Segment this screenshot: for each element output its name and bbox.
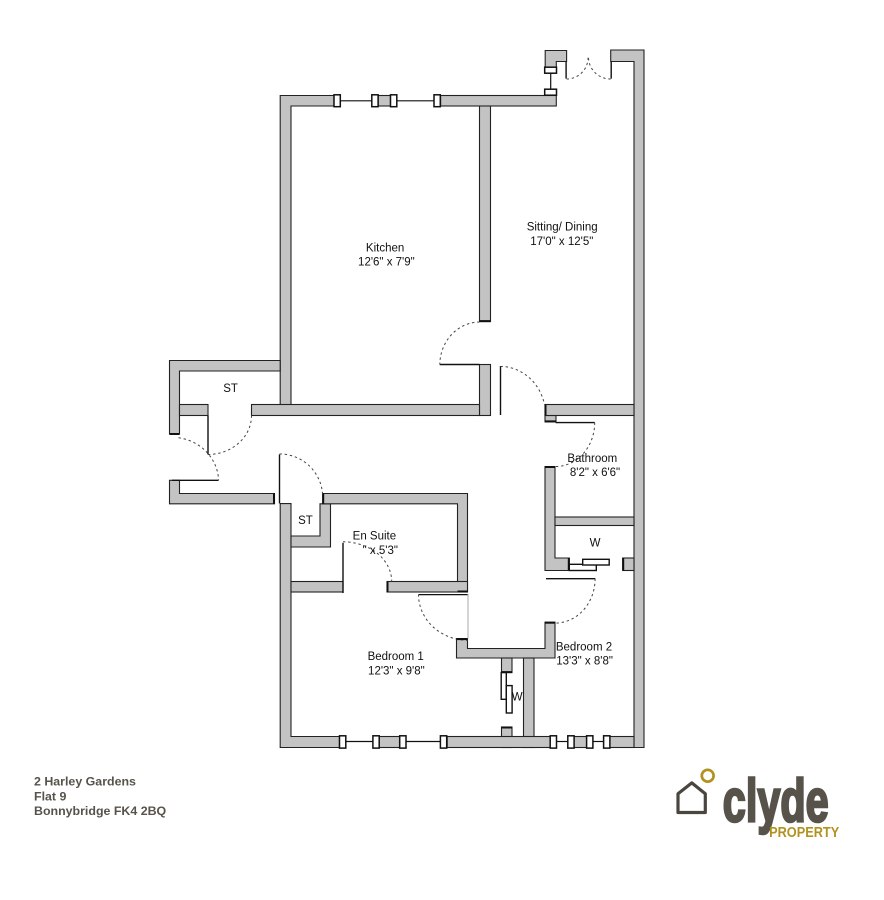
svg-text:17'0" x 12'5": 17'0" x 12'5" (530, 236, 593, 248)
svg-text:8'2" x 6'6": 8'2" x 6'6" (570, 467, 620, 479)
svg-text:12'6" x 7'9": 12'6" x 7'9" (358, 257, 415, 269)
svg-text:W: W (512, 692, 523, 704)
svg-text:ST: ST (298, 515, 313, 527)
svg-text:Bathroom: Bathroom (567, 453, 617, 465)
svg-text:PROPERTY: PROPERTY (769, 824, 839, 840)
svg-text:W: W (590, 538, 601, 550)
svg-text:13'3" x 8'8": 13'3" x 8'8" (556, 656, 613, 668)
svg-text:En Suite: En Suite (353, 531, 396, 543)
svg-text:12'3" x 9'8": 12'3" x 9'8" (368, 666, 425, 678)
svg-text:Bedroom 1: Bedroom 1 (368, 651, 424, 663)
svg-text:Bonnybridge FK4 2BQ: Bonnybridge FK4 2BQ (34, 804, 167, 818)
svg-text:Kitchen: Kitchen (366, 242, 404, 254)
svg-text:2 Harley Gardens: 2 Harley Gardens (34, 774, 136, 788)
svg-text:Sitting/ Dining: Sitting/ Dining (527, 222, 598, 234)
svg-text:ST: ST (223, 383, 238, 395)
svg-text:Bedroom 2: Bedroom 2 (556, 642, 612, 654)
svg-text:" x 5'3": " x 5'3" (363, 545, 398, 557)
svg-text:Flat 9: Flat 9 (34, 789, 66, 803)
